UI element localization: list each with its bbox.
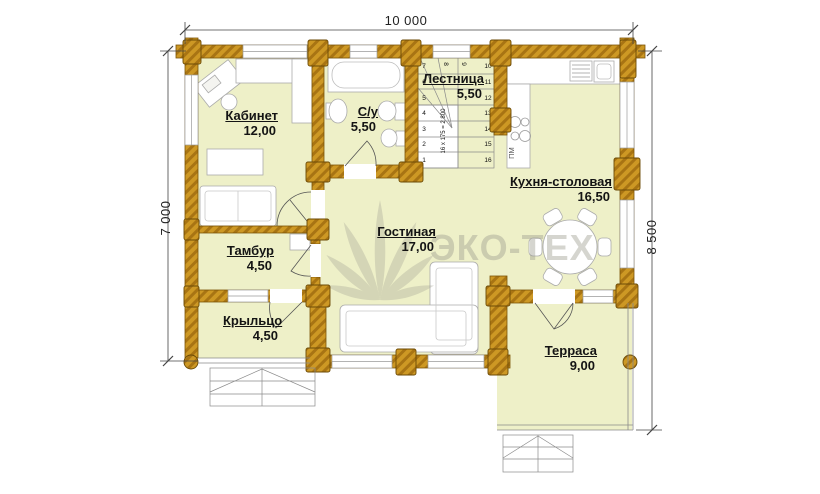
door-opening-tambur-porch: [270, 289, 302, 303]
room-label-su: С/у 5,50: [330, 104, 378, 134]
dim-label-top: 10 000: [356, 13, 456, 28]
room-label-terrasa: Терраса 9,00: [533, 343, 597, 373]
room-label-kuhnya: Кухня-столовая 16,50: [506, 174, 612, 204]
room-name-lestnitsa: Лестница: [420, 71, 484, 86]
kitchen-sink: [594, 61, 614, 82]
stair-num: 7: [422, 63, 426, 70]
room-name-terrasa: Терраса: [533, 343, 597, 358]
bidet-bowl: [381, 129, 397, 147]
stair-num-winder: 8: [442, 62, 449, 66]
terrace-steps: [503, 435, 573, 472]
watermark-text: ЭКО-ТЕХ: [430, 227, 595, 269]
room-name-su: С/у: [330, 104, 378, 119]
dim-label-left: 7 000: [158, 188, 174, 248]
stair-num: 16: [484, 157, 492, 164]
room-label-krlytso: Крыльцо 4,50: [223, 313, 280, 343]
stair-num: 12: [484, 95, 492, 102]
room-area-tambur: 4,50: [220, 258, 274, 273]
stair-num: 2: [422, 141, 426, 148]
dining-chair: [598, 238, 611, 256]
door-opening-terrace: [533, 289, 575, 304]
fridge: [570, 61, 592, 81]
stair-num: 4: [422, 110, 426, 117]
room-area-kuhnya: 16,50: [506, 189, 612, 204]
round-post-terrace: [623, 355, 637, 369]
room-area-terrasa: 9,00: [533, 358, 597, 373]
round-post-porch: [184, 355, 198, 369]
room-name-gostinaya: Гостиная: [368, 224, 436, 239]
room-name-kuhnya: Кухня-столовая: [506, 174, 612, 189]
floor-plan-canvas: 7 6 5 4 3 2 1 10 11 12 13 14 15 16 8 9 1…: [0, 0, 820, 494]
office-shelf: [236, 59, 294, 83]
room-area-gostinaya: 17,00: [368, 239, 436, 254]
door-opening-tambur-living: [310, 244, 321, 277]
stair-num: 15: [484, 141, 492, 148]
office-wardrobe: [292, 59, 312, 123]
stair-num: 3: [422, 126, 426, 133]
room-name-tambur: Тамбур: [220, 243, 274, 258]
toilet-tank: [395, 103, 405, 120]
stair-num-winder: 9: [460, 62, 467, 66]
room-label-lestnitsa: Лестница 5,50: [420, 71, 484, 101]
dishwasher-label: ПМ: [507, 147, 516, 159]
door-opening-su: [344, 164, 376, 179]
room-area-su: 5,50: [330, 119, 378, 134]
room-label-tambur: Тамбур 4,50: [220, 243, 274, 273]
room-area-krlytso: 4,50: [223, 328, 280, 343]
room-label-gostinaya: Гостиная 17,00: [368, 224, 436, 254]
toilet-bowl: [378, 101, 396, 121]
room-area-lestnitsa: 5,50: [420, 86, 484, 101]
stair-num: 11: [485, 79, 492, 86]
room-name-krlytso: Крыльцо: [223, 313, 280, 328]
office-table: [207, 149, 263, 175]
wall-kabinet-tambur: [198, 226, 314, 233]
room-area-kabinet: 12,00: [199, 123, 278, 138]
stairs-annotation: 16 х 175 = 2 800: [441, 108, 447, 154]
room-label-kabinet: Кабинет 12,00: [199, 108, 278, 138]
room-name-kabinet: Кабинет: [199, 108, 278, 123]
porch-steps: [210, 368, 315, 406]
dim-label-right: 8 500: [644, 207, 660, 267]
